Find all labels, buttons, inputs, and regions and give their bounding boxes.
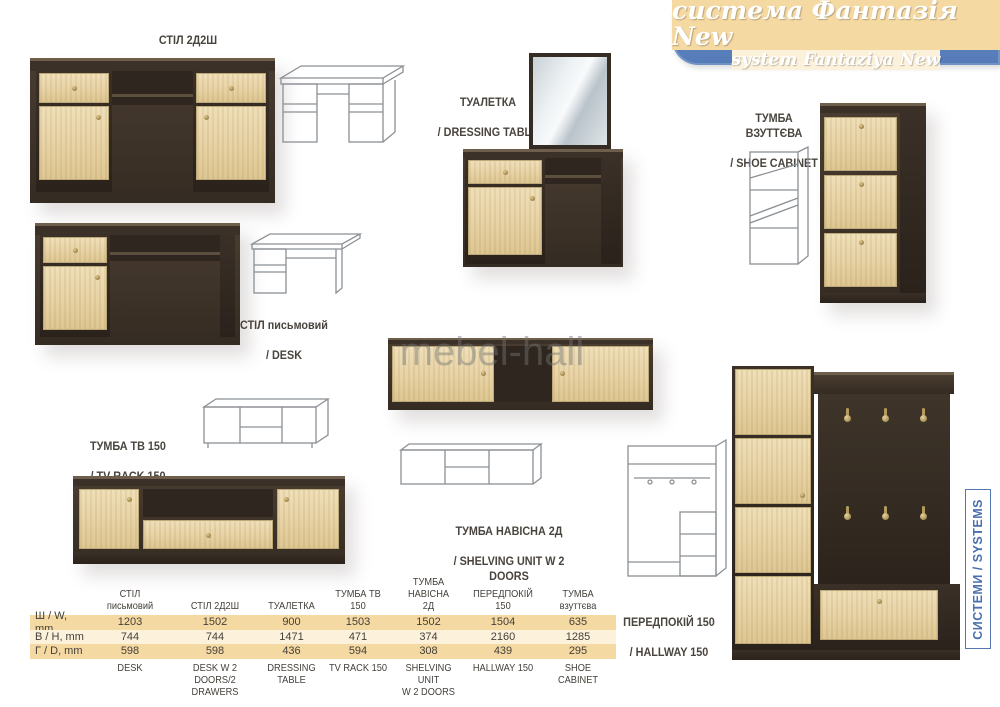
cell-depth: 598 <box>172 644 258 659</box>
open-shelf-niche <box>545 158 601 184</box>
coat-hook <box>846 506 849 514</box>
plinth <box>820 293 926 303</box>
cell-width: 1503 <box>325 615 391 630</box>
shoe-flap <box>824 233 897 287</box>
door-front <box>196 106 266 180</box>
row-label-width: Ш / W, mm <box>30 615 88 630</box>
col-footer: TV RACK 150 <box>329 659 387 701</box>
systems-side-tab: СИСТЕМИ / SYSTEMS <box>965 489 991 649</box>
hallway-back-panel <box>818 394 950 584</box>
cell-height: 744 <box>88 630 172 644</box>
col-footer: HALLWAY 150 <box>470 659 535 701</box>
door-front <box>277 489 339 549</box>
hallway-wireframe <box>616 436 732 592</box>
desk-side-leg <box>220 235 235 337</box>
desk-right-pedestal <box>193 71 269 192</box>
col-footer: DRESSING TABLE <box>262 659 321 701</box>
plinth <box>732 650 960 660</box>
cabinet-top <box>73 476 345 486</box>
cell-width: 1504 <box>466 615 540 630</box>
cabinet-top <box>820 103 926 113</box>
cell-width: 900 <box>258 615 325 630</box>
row-label-depth: Г / D, mm <box>30 644 88 659</box>
desk-worktop <box>30 58 275 71</box>
desk-worktop <box>35 223 240 235</box>
col-footer: SHOE CABINET <box>545 659 612 701</box>
desk-keyboard-niche <box>112 71 193 105</box>
drawer-front <box>43 237 107 263</box>
col-header: ТУМБА ТВ 150 <box>329 575 387 615</box>
table-corner <box>30 659 88 701</box>
cell-depth: 308 <box>391 644 466 659</box>
desk-pedestal <box>40 235 110 337</box>
coat-hook <box>922 506 925 514</box>
hallway-wardrobe-column <box>732 366 814 656</box>
system-title: система Фантазія New <box>672 0 1000 50</box>
hallway-top-shelf <box>814 372 954 394</box>
row-label-height: В / H, mm <box>30 630 88 644</box>
tv-rack-wireframe <box>196 391 334 453</box>
cell-depth: 594 <box>325 644 391 659</box>
col-footer: DESK <box>93 659 167 701</box>
mirror <box>529 53 611 149</box>
cell-depth: 439 <box>466 644 540 659</box>
cell-width: 635 <box>540 615 616 630</box>
label-desk: СТІЛ письмовий / DESK <box>239 303 329 378</box>
col-header: ТУМБА НАВІСНА 2Д <box>396 575 462 615</box>
desk-left-pedestal <box>36 71 112 192</box>
cell-height: 1471 <box>258 630 325 644</box>
desk-2d2sh-render <box>30 58 275 203</box>
system-banner: система Фантазія New system Fantaziya Ne… <box>672 3 1000 65</box>
door-front <box>735 369 811 435</box>
desk-keyboard-niche <box>110 235 220 261</box>
cabinet-side <box>900 113 926 293</box>
door-front <box>468 187 542 255</box>
door-front <box>79 489 139 549</box>
cell-depth: 295 <box>540 644 616 659</box>
shoe-cabinet-render <box>820 103 926 303</box>
shoe-flap <box>824 175 897 229</box>
col-header: СТІЛ 2Д2Ш <box>177 575 253 615</box>
coat-hook <box>884 506 887 514</box>
door-front <box>43 266 107 330</box>
cell-width: 1502 <box>391 615 466 630</box>
door-front <box>735 576 811 644</box>
door-front <box>735 438 811 504</box>
dimensions-table: СТІЛ письмовий СТІЛ 2Д2Ш ТУАЛЕТКА ТУМБА … <box>30 575 616 701</box>
col-header: СТІЛ письмовий <box>93 575 167 615</box>
dressing-table-body <box>463 149 623 267</box>
shoe-cabinet-wireframe <box>740 146 815 271</box>
col-footer: SHELVING UNIT W 2 DOORS <box>396 659 462 701</box>
drawer-front <box>39 73 109 103</box>
system-subtitle: system Fantaziya New <box>732 50 941 70</box>
coat-hook <box>884 408 887 416</box>
dressing-table-render <box>463 53 625 270</box>
coat-hook <box>846 408 849 416</box>
label-hallway: ПЕРЕДПОКІЙ 150 / HALLWAY 150 <box>616 600 722 675</box>
cell-width: 1502 <box>172 615 258 630</box>
cell-depth: 598 <box>88 644 172 659</box>
col-header: ТУМБА взуттєва <box>545 575 612 615</box>
drawer-front <box>143 520 273 549</box>
plinth <box>73 552 345 564</box>
col-header: ТУАЛЕТКА <box>262 575 321 615</box>
bench-flap <box>820 590 938 640</box>
door-front <box>39 106 109 180</box>
writing-desk-render <box>35 223 240 345</box>
door-front <box>735 507 811 573</box>
hallway-render <box>726 360 960 660</box>
desk-2d2sh-wireframe <box>273 60 408 150</box>
cell-depth: 436 <box>258 644 325 659</box>
cell-width: 1203 <box>88 615 172 630</box>
cell-height: 1285 <box>540 630 616 644</box>
hallway-bench <box>814 584 960 650</box>
side-leg <box>601 158 621 264</box>
watermark: mebel-hall <box>392 330 592 375</box>
writing-desk-wireframe <box>246 228 364 298</box>
drawer-front <box>468 160 542 184</box>
shelving-unit-wireframe <box>393 436 545 494</box>
cell-height: 744 <box>172 630 258 644</box>
tv-rack-render <box>73 476 345 564</box>
coat-hook <box>922 408 925 416</box>
col-header: ПЕРЕДПОКІЙ 150 <box>470 575 535 615</box>
shoe-flap <box>824 117 897 171</box>
pedestal <box>465 158 545 264</box>
drawer-front <box>196 73 266 103</box>
desk-worktop <box>463 149 623 158</box>
col-footer: DESK W 2 DOORS/2 DRAWERS <box>177 659 253 701</box>
cell-height: 2160 <box>466 630 540 644</box>
cell-height: 471 <box>325 630 391 644</box>
cell-height: 374 <box>391 630 466 644</box>
open-niche <box>143 489 273 517</box>
